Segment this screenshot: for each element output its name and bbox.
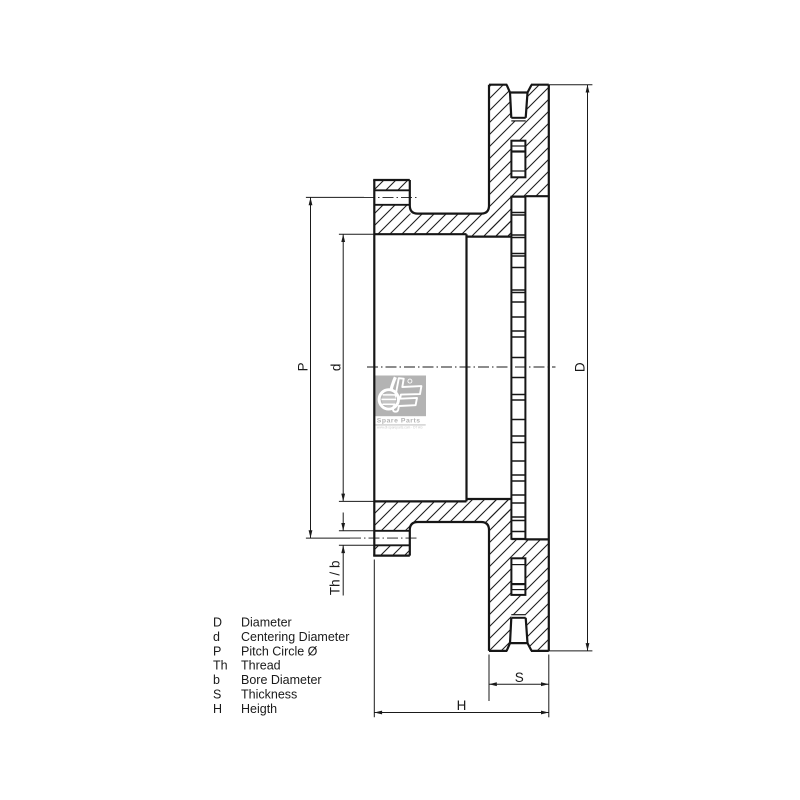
svg-text:b: b: [213, 673, 220, 687]
svg-text:H: H: [213, 702, 222, 716]
svg-text:Thread: Thread: [241, 659, 281, 673]
svg-text:Th: Th: [213, 659, 228, 673]
svg-text:Diameter: Diameter: [241, 616, 292, 630]
svg-text:D: D: [213, 616, 222, 630]
svg-text:d: d: [213, 630, 220, 644]
svg-text:P: P: [295, 362, 310, 371]
svg-text:Spare Parts: Spare Parts: [377, 418, 421, 425]
svg-text:D: D: [572, 362, 587, 372]
svg-text:Th / b: Th / b: [327, 561, 342, 596]
svg-text:Pitch Circle Ø: Pitch Circle Ø: [241, 644, 318, 658]
svg-text:H: H: [457, 698, 467, 713]
svg-text:Heigth: Heigth: [241, 702, 277, 716]
svg-text:P: P: [213, 644, 221, 658]
svg-text:Thickness: Thickness: [241, 688, 297, 702]
svg-text:S: S: [213, 688, 221, 702]
svg-text:www.dt-spareparts.com · DT AG: www.dt-spareparts.com · DT AG: [377, 426, 423, 430]
svg-text:d: d: [328, 364, 343, 372]
svg-text:Centering Diameter: Centering Diameter: [241, 630, 349, 644]
svg-text:S: S: [515, 670, 524, 685]
svg-text:Bore Diameter: Bore Diameter: [241, 673, 322, 687]
